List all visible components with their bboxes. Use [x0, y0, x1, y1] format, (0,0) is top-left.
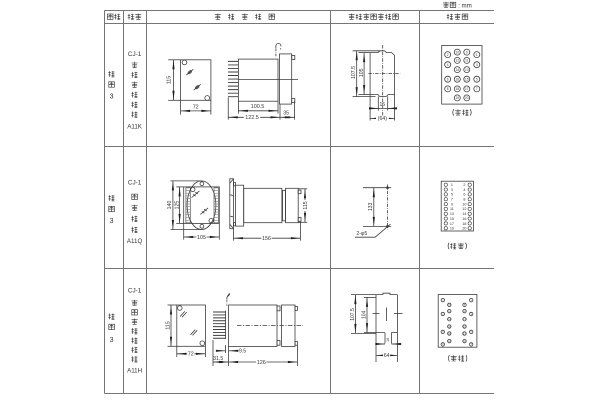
svg-text:1: 1: [476, 53, 478, 57]
svg-text:8: 8: [447, 87, 449, 91]
svg-text:133: 133: [368, 202, 374, 211]
svg-text:2: 2: [463, 183, 465, 187]
svg-text:35: 35: [283, 110, 289, 116]
svg-text:7: 7: [451, 198, 453, 202]
svg-text:4: 4: [447, 63, 449, 67]
svg-text:A11Q: A11Q: [127, 238, 143, 245]
svg-text:64: 64: [384, 353, 390, 359]
svg-text:18: 18: [462, 222, 466, 226]
svg-text:3: 3: [451, 188, 453, 192]
svg-text:20: 20: [462, 227, 466, 231]
svg-text:5: 5: [476, 77, 478, 81]
svg-text:CJ-1: CJ-1: [128, 288, 142, 295]
svg-text:4: 4: [463, 188, 465, 192]
svg-text:CJ-1: CJ-1: [128, 51, 142, 58]
svg-text:2-φ5: 2-φ5: [356, 231, 367, 237]
svg-text:mm: mm: [462, 2, 472, 9]
svg-text::: :: [458, 2, 460, 9]
svg-text:3: 3: [110, 337, 114, 344]
svg-text:3: 3: [110, 218, 114, 225]
svg-text:17: 17: [450, 222, 454, 226]
svg-text:12: 12: [462, 207, 466, 211]
svg-text:156: 156: [262, 236, 271, 242]
svg-text:115: 115: [167, 76, 173, 85]
svg-text:140: 140: [167, 201, 173, 210]
svg-text:12: 12: [456, 59, 460, 63]
svg-text:9: 9: [451, 202, 453, 206]
svg-text:5: 5: [451, 193, 453, 197]
svg-text:13: 13: [465, 68, 469, 72]
svg-text:(64): (64): [378, 116, 387, 122]
svg-text:16: 16: [380, 102, 386, 108]
svg-text:15: 15: [450, 217, 454, 221]
svg-text:6: 6: [447, 77, 449, 81]
svg-text:105: 105: [359, 68, 365, 77]
svg-text:72: 72: [188, 352, 194, 358]
svg-text:CJ-1: CJ-1: [128, 180, 142, 187]
svg-text:72: 72: [193, 105, 199, 111]
svg-text:104: 104: [362, 310, 368, 319]
svg-text:20: 20: [465, 96, 469, 100]
svg-text:115: 115: [166, 321, 172, 330]
svg-text:122.5: 122.5: [245, 115, 259, 121]
svg-text:A11K: A11K: [127, 123, 143, 130]
svg-text:7: 7: [476, 87, 478, 91]
svg-text:10: 10: [462, 202, 466, 206]
svg-text:19: 19: [450, 227, 454, 231]
svg-text:6: 6: [463, 193, 465, 197]
svg-text:A11H: A11H: [127, 368, 142, 375]
svg-text:18: 18: [456, 87, 460, 91]
svg-text:16: 16: [386, 338, 390, 342]
svg-text:107.5: 107.5: [350, 308, 356, 321]
svg-text:10: 10: [456, 50, 460, 54]
svg-text:125: 125: [174, 201, 180, 210]
svg-text:16: 16: [456, 77, 460, 81]
svg-text:31.5: 31.5: [213, 356, 223, 362]
svg-text:3: 3: [476, 63, 478, 67]
svg-text:11: 11: [450, 207, 454, 211]
svg-text:17: 17: [465, 87, 469, 91]
svg-text:105: 105: [197, 235, 206, 241]
svg-text:100.5: 100.5: [251, 104, 265, 110]
svg-text:115: 115: [303, 201, 309, 209]
svg-text:126: 126: [257, 360, 266, 366]
svg-text:9.5: 9.5: [239, 349, 246, 355]
svg-text:9: 9: [466, 50, 468, 54]
svg-text:13: 13: [450, 212, 454, 216]
svg-text:16: 16: [462, 217, 466, 221]
svg-text:19: 19: [456, 96, 460, 100]
svg-text:14: 14: [456, 68, 460, 72]
svg-text:11: 11: [465, 59, 469, 63]
svg-text:14: 14: [462, 212, 466, 216]
svg-text:8: 8: [463, 198, 465, 202]
svg-text:3: 3: [110, 94, 114, 101]
svg-text:1: 1: [451, 183, 453, 187]
svg-text:2: 2: [447, 53, 449, 57]
svg-text:15: 15: [465, 77, 469, 81]
svg-text:107.5: 107.5: [351, 66, 357, 79]
